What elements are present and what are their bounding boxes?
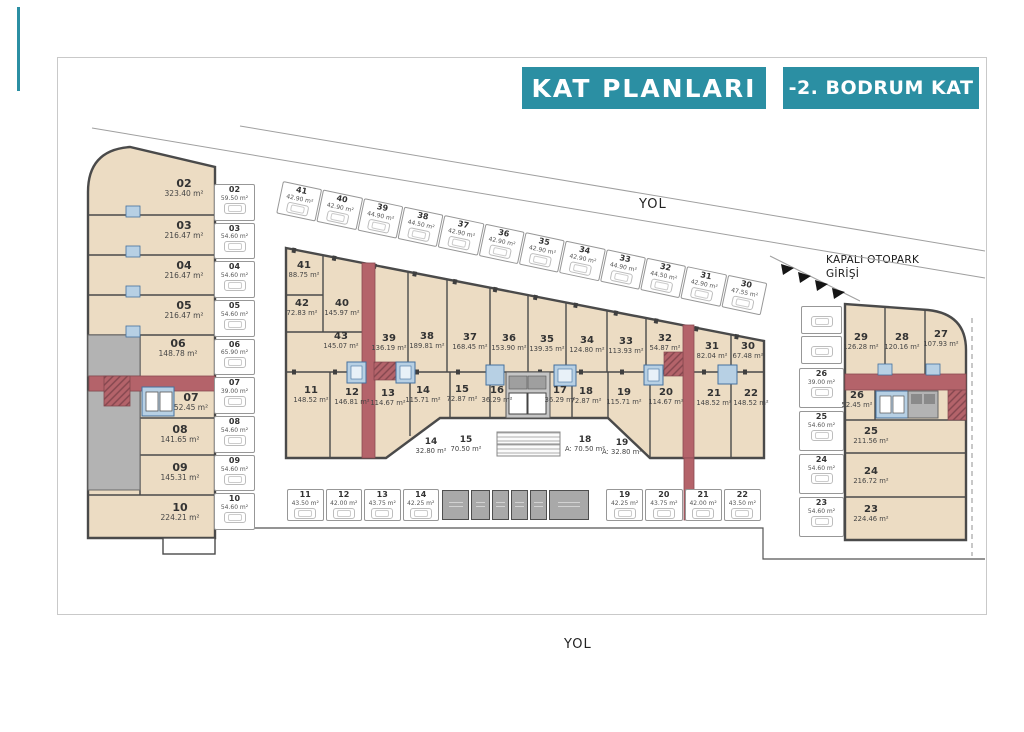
technical-room	[511, 490, 528, 520]
car-icon	[811, 430, 833, 441]
unit-label-32: 3254.87 m²	[650, 334, 681, 352]
unit-label-21: 21148.52 m²	[696, 389, 731, 407]
unit-label-10: 10224.21 m²	[161, 502, 200, 522]
car-icon	[224, 203, 246, 214]
left-parking-strip: 02 59.50 m² 03 54.60 m² 04 54.60 m² 05 5…	[214, 184, 255, 532]
unit-label-20: 20114.67 m²	[648, 388, 683, 406]
car-icon	[811, 516, 833, 527]
unit-label-35: 35139.35 m²	[529, 335, 564, 353]
right-parking-extra-cells	[801, 306, 842, 366]
unit-label-13: 13114.67 m²	[370, 389, 405, 407]
unit-label-06: 06148.78 m²	[159, 338, 198, 358]
unit-label-14: 14115.71 m²	[405, 386, 440, 404]
unit-label-12: 12146.81 m²	[334, 388, 369, 406]
car-icon	[224, 474, 246, 485]
parking-cell: 25 54.60 m²	[799, 411, 844, 451]
unit-label-41: 4188.75 m²	[289, 261, 320, 279]
car-icon	[811, 346, 833, 357]
car-icon	[224, 241, 246, 252]
unit-label-43: 43145.07 m²	[323, 332, 358, 350]
unit-label-34: 34124.80 m²	[569, 336, 604, 354]
car-icon	[692, 508, 714, 519]
unit-label-07: 0752.45 m²	[174, 392, 208, 412]
parking-cell: 13 43.75 m²	[364, 489, 401, 521]
parking-cell: 20 43.75 m²	[645, 489, 682, 521]
technical-room	[492, 490, 509, 520]
unit-label-30: 3067.48 m²	[733, 342, 764, 360]
car-icon	[811, 473, 833, 484]
unit-label-38: 38189.81 m²	[409, 332, 444, 350]
parking-cell: 22 43.50 m²	[724, 489, 761, 521]
unit-label-22: 22148.52 m²	[733, 389, 768, 407]
car-icon	[294, 508, 316, 519]
parking-cell	[801, 306, 842, 334]
unit-label-27: 27107.93 m²	[923, 330, 958, 348]
car-icon	[614, 508, 636, 519]
parking-cell: 11 43.50 m²	[287, 489, 324, 521]
parking-cell: 19 42.25 m²	[606, 489, 643, 521]
unit-label-39: 39136.19 m²	[371, 334, 406, 352]
unit-label-42: 4272.83 m²	[287, 299, 318, 317]
parking-cell: 24 54.60 m²	[799, 454, 844, 494]
parking-cell: 02 59.50 m²	[214, 184, 255, 221]
parking-cell: 12 42.00 m²	[326, 489, 363, 521]
car-icon	[224, 512, 246, 523]
parking-cell: 07 39.00 m²	[214, 377, 255, 414]
parking-cell: 23 54.60 m²	[799, 497, 844, 537]
unit-label-16: 1636.29 m²	[482, 386, 513, 404]
parking-cell: 10 54.60 m²	[214, 493, 255, 530]
car-icon	[224, 396, 246, 407]
unit-label-05: 05216.47 m²	[165, 300, 204, 320]
car-icon	[731, 508, 753, 519]
parking-cell: 26 39.00 m²	[799, 368, 844, 408]
unit-label-15: 1572.87 m²	[447, 385, 478, 403]
parking-cell: 03 54.60 m²	[214, 223, 255, 260]
unit-label-26: 2652.45 m²	[842, 391, 873, 409]
unit-label-33: 33113.93 m²	[608, 337, 643, 355]
unit-label-28: 28120.16 m²	[884, 333, 919, 351]
unit-label-19: 19115.71 m²	[606, 388, 641, 406]
unit-label-36: 36153.90 m²	[491, 334, 526, 352]
unit-label-08: 08141.65 m²	[161, 424, 200, 444]
outdoor-label-19: 19A: 32.80 m²	[602, 439, 642, 456]
parking-cell: 21 42.00 m²	[685, 489, 722, 521]
technical-room	[471, 490, 490, 520]
car-icon	[224, 357, 246, 368]
unit-label-03: 03216.47 m²	[165, 220, 204, 240]
car-icon	[224, 435, 246, 446]
technical-room	[442, 490, 469, 520]
car-icon	[224, 319, 246, 330]
parking-cell: 06 65.90 m²	[214, 339, 255, 376]
unit-label-02: 02323.40 m²	[165, 178, 204, 198]
unit-label-37: 37168.45 m²	[452, 333, 487, 351]
floor-plan-drawing	[0, 0, 1024, 732]
unit-label-23: 23224.46 m²	[853, 505, 888, 523]
outdoor-label-15: 1570.50 m²	[451, 436, 482, 453]
car-icon	[333, 508, 355, 519]
outdoor-label-14: 1432.80 m²	[416, 438, 447, 455]
outdoor-label-18: 18A: 70.50 m²	[565, 436, 605, 453]
unit-label-29: 29126.28 m²	[843, 333, 878, 351]
unit-label-40: 40145.97 m²	[324, 299, 359, 317]
right-parking-strip: 26 39.00 m² 25 54.60 m² 24 54.60 m² 23 5…	[799, 368, 844, 540]
parking-cell: 14 42.25 m²	[403, 489, 440, 521]
bottom-parking-strip-left: 11 43.50 m² 12 42.00 m² 13 43.75 m² 14 4…	[287, 489, 441, 521]
unit-label-25: 25211.56 m²	[853, 427, 888, 445]
parking-cell: 09 54.60 m²	[214, 455, 255, 492]
unit-label-18: 1872.87 m²	[571, 387, 602, 405]
car-icon	[371, 508, 393, 519]
parking-cell: 05 54.60 m²	[214, 300, 255, 337]
unit-label-31: 3182.04 m²	[697, 342, 728, 360]
car-icon	[224, 280, 246, 291]
parking-cell: 04 54.60 m²	[214, 261, 255, 298]
technical-rooms	[442, 490, 606, 520]
entrance-arrow-icons	[781, 264, 845, 299]
bottom-parking-strip-right: 19 42.25 m² 20 43.75 m² 21 42.00 m² 22 4…	[606, 489, 763, 521]
technical-room	[549, 490, 589, 520]
floor-plan-page: KAT PLANLARI -2. BODRUM KAT YOL YOL KAPA…	[0, 0, 1024, 732]
car-icon	[653, 508, 675, 519]
unit-label-24: 24216.72 m²	[853, 467, 888, 485]
technical-room	[530, 490, 547, 520]
car-icon	[811, 387, 833, 398]
parking-cell: 08 54.60 m²	[214, 416, 255, 453]
unit-label-09: 09145.31 m²	[161, 462, 200, 482]
unit-label-11: 11148.52 m²	[293, 386, 328, 404]
car-icon	[410, 508, 432, 519]
unit-label-04: 04216.47 m²	[165, 260, 204, 280]
car-icon	[811, 316, 833, 327]
parking-cell	[801, 336, 842, 364]
